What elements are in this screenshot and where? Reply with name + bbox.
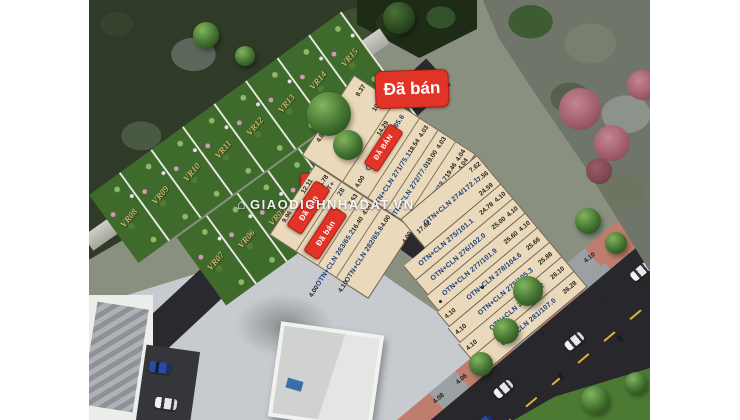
plot-length-number: 25.88 [537, 250, 554, 266]
tree [333, 130, 363, 160]
tree [469, 352, 493, 376]
plot-width-number: 4.03 [417, 124, 430, 138]
sidewalk-dimension: 4.10 [583, 251, 597, 264]
tree [383, 2, 415, 34]
house-icon: ⌂ [237, 196, 247, 212]
tree [513, 276, 543, 306]
garden-plot-label: VR07 [205, 250, 226, 273]
garden-plot-label: VR08 [118, 207, 139, 230]
pedestrian [541, 332, 544, 335]
plot-length-number: 26.28 [561, 280, 578, 296]
tree [625, 372, 647, 394]
plot-width-number: 4.03 [436, 136, 449, 150]
plot-width-number: 4.10 [517, 219, 531, 232]
garden-plot-label: VR12 [244, 115, 265, 138]
car [563, 331, 585, 352]
plot-width-number: 4.10 [453, 323, 467, 336]
tree [605, 232, 627, 254]
pink-foliage [559, 88, 601, 130]
pedestrian [481, 286, 484, 289]
sold-banner-text: Đã bán [383, 78, 440, 100]
plot-length-number: 26.10 [549, 265, 566, 281]
tree [581, 386, 609, 414]
garden-plot-label: VR06 [236, 227, 257, 250]
plot-width-number: 4.10 [493, 190, 507, 203]
plot-width-number: 4.10 [464, 338, 478, 351]
tree [575, 208, 601, 234]
plot-length-number: 25.60 [503, 229, 520, 245]
tree [235, 46, 255, 66]
car [475, 413, 495, 420]
pedestrian [601, 300, 604, 303]
building [268, 321, 384, 420]
sidewalk-dimension: 4.06 [455, 373, 469, 386]
garden-plot-label: VR14 [307, 69, 328, 92]
sidewalk-dimension: 4.08 [432, 392, 446, 405]
garden-plot-label: VR11 [213, 138, 234, 160]
plot-width-number: 4.00 [354, 175, 367, 189]
garden-plot-label: VR10 [181, 161, 202, 184]
plot-width-number: 4.10 [443, 307, 457, 320]
real-estate-aerial-render: 4.08 4.06 4.08 3.57 4.18 2.05 2.60 4.10 … [0, 0, 740, 420]
maroon-foliage [586, 158, 612, 184]
dimension-number: 17.62 [416, 219, 433, 235]
plot-width-number: 4.10 [505, 205, 519, 218]
aerial-photo: 4.08 4.06 4.08 3.57 4.18 2.05 2.60 4.10 … [89, 0, 650, 420]
watermark-text: GIAODICHNHADAT.VN [250, 197, 415, 212]
plot-width-number: 7.62 [468, 161, 482, 174]
car [492, 379, 514, 400]
watermark: ⌂GIAODICHNHADAT.VN [237, 196, 415, 212]
tree [193, 22, 219, 48]
plot-length-number: 25.66 [525, 236, 542, 252]
dimension-number: 8.37 [355, 84, 368, 98]
motorbike [616, 334, 624, 343]
sold-banner: Đã bán [374, 69, 449, 110]
garden-plot-label: VR15 [339, 46, 360, 69]
tree [493, 318, 519, 344]
plot-length-number: 25.00 [490, 215, 507, 231]
pedestrian [439, 300, 442, 303]
garden-plot-label: VR09 [150, 184, 171, 207]
building-roof [272, 326, 379, 420]
plot-length-number: 24.78 [478, 200, 495, 216]
pink-foliage [594, 125, 630, 161]
garden-plot-label: VR13 [276, 92, 297, 115]
pink-foliage [627, 70, 650, 100]
